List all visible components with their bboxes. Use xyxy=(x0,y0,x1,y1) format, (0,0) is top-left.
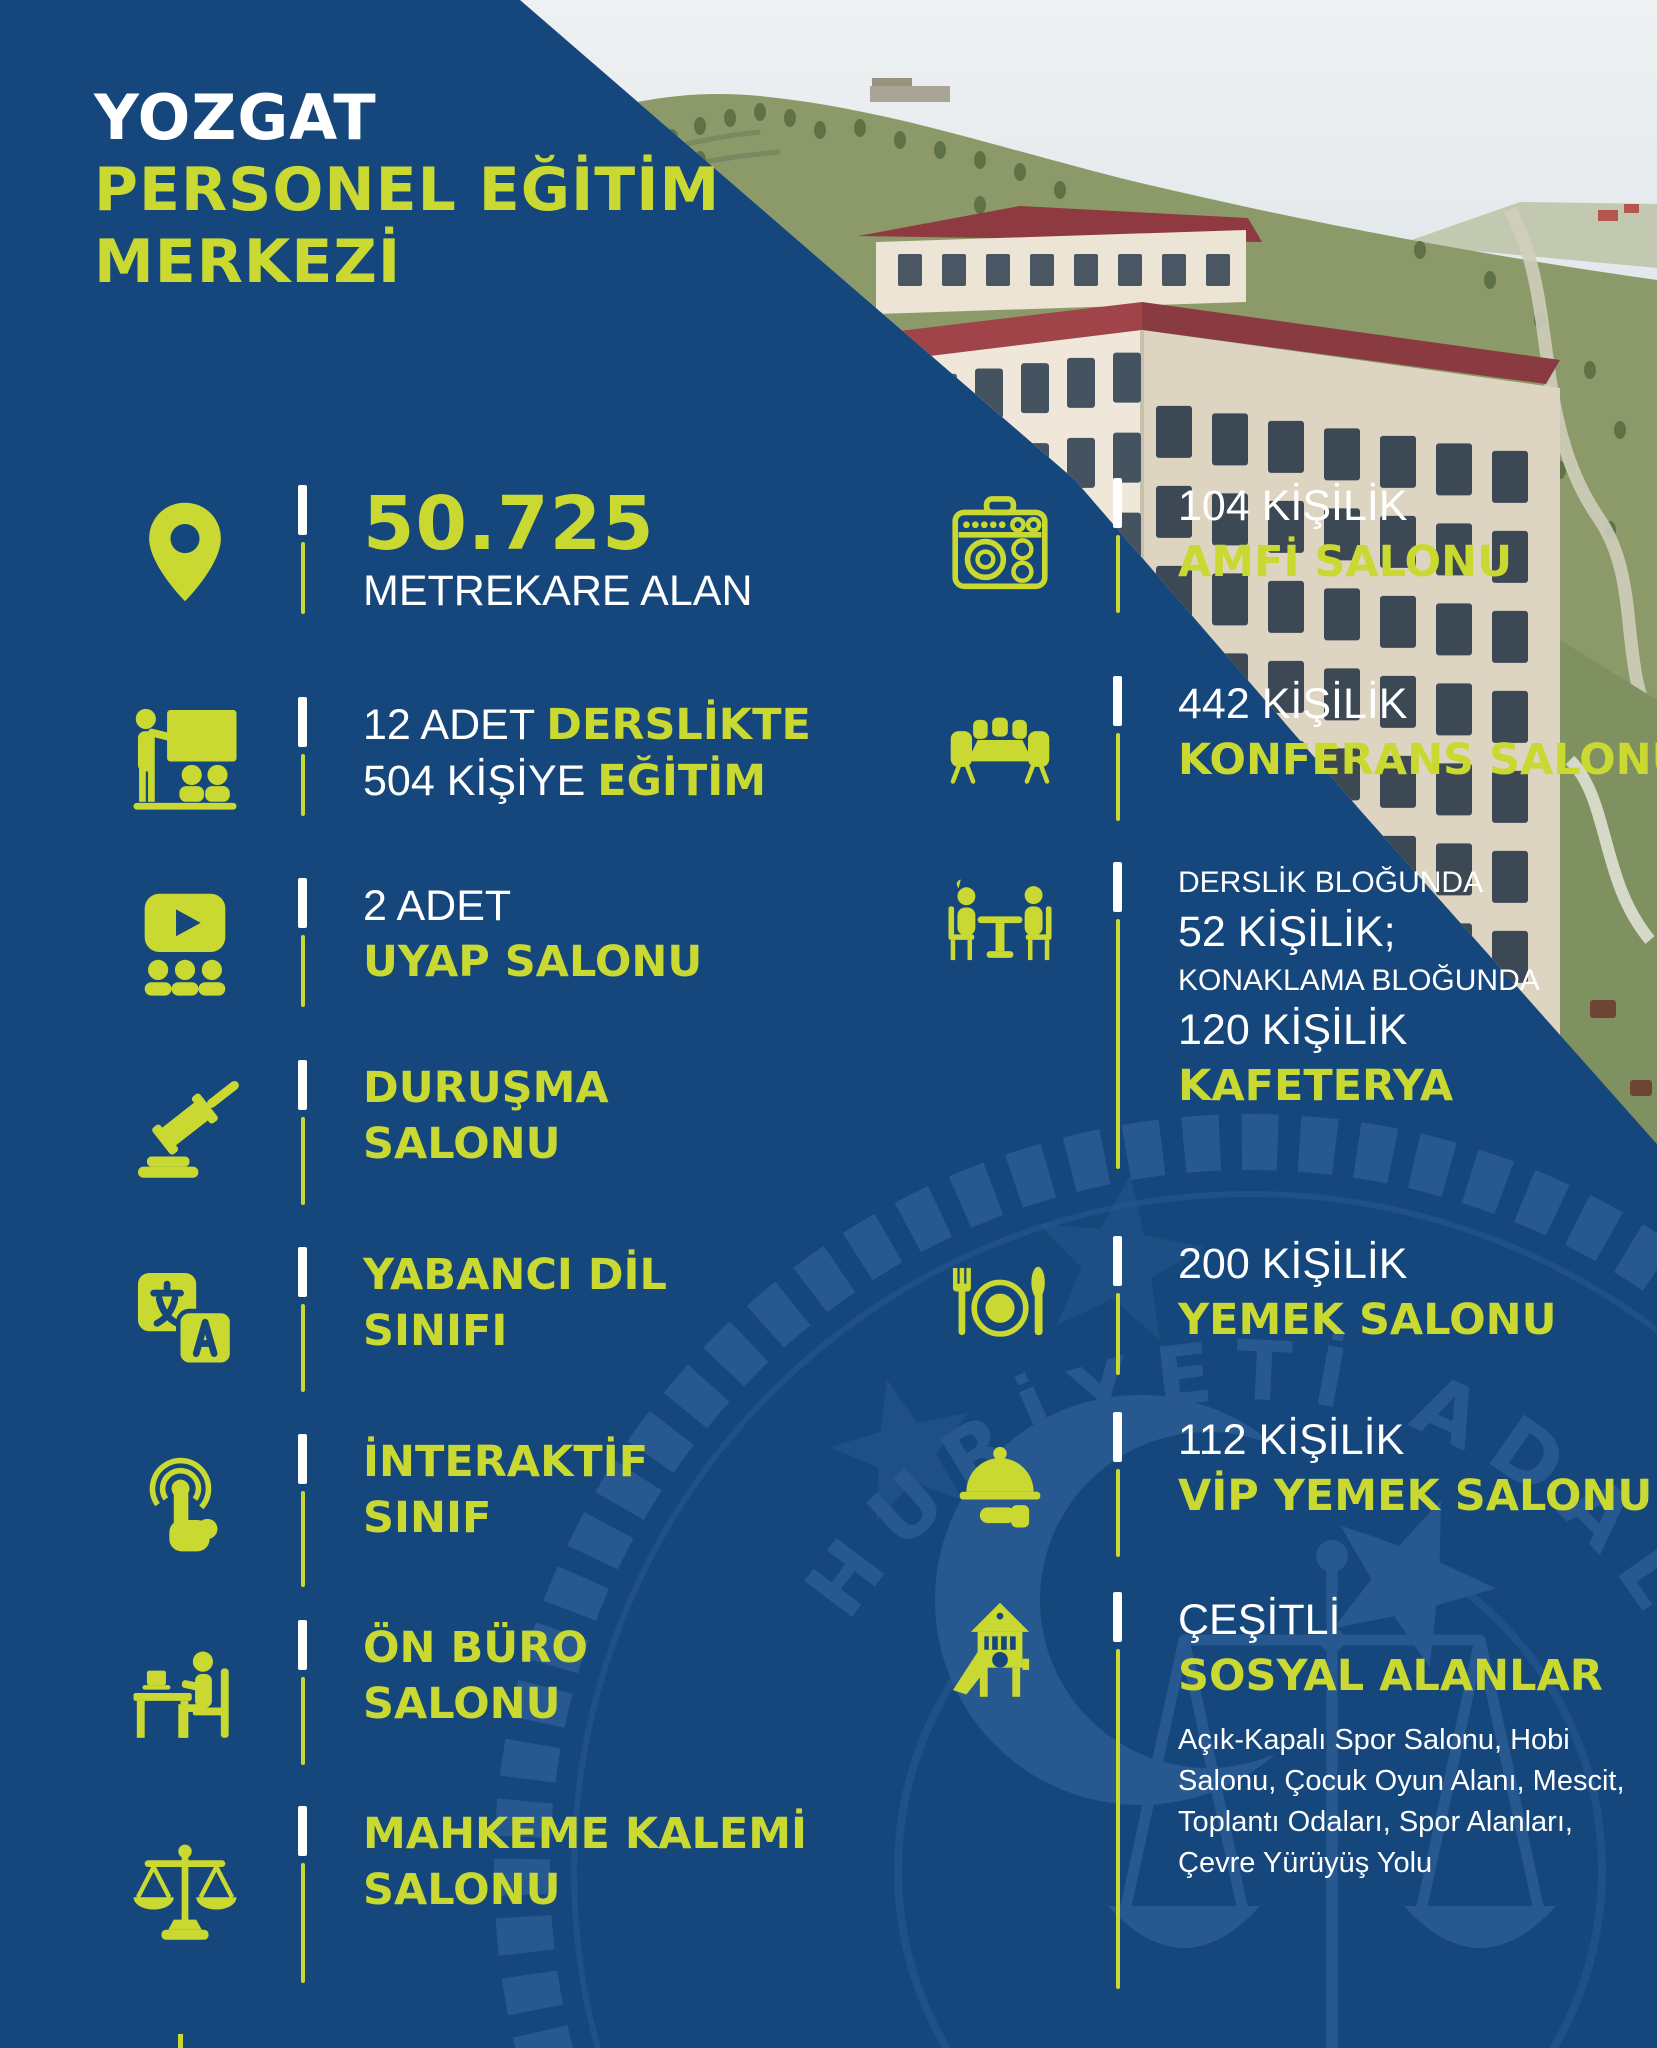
item-divider xyxy=(1113,478,1122,613)
title-line-2: PERSONEL EĞİTİM xyxy=(94,154,720,226)
title-line-3: MERKEZİ xyxy=(94,226,720,298)
uyap-video-icon xyxy=(100,887,270,999)
cafeteria-icon xyxy=(915,866,1085,978)
gavel-icon xyxy=(100,1077,270,1189)
item-vip-yemek-salonu: 112 KİŞİLİKVİP YEMEK SALONU xyxy=(915,1412,1652,1557)
dining-icon xyxy=(915,1250,1085,1362)
item-text: 12 ADET DERSLİKTE504 KİŞİYE EĞİTİM xyxy=(363,697,811,816)
item-on-buro-salonu: ÖN BÜROSALONU xyxy=(100,1620,588,1765)
item-text: ÇEŞİTLİSOSYAL ALANLARAçık-Kapalı Spor Sa… xyxy=(1178,1592,1625,1989)
location-pin-icon xyxy=(100,496,270,608)
infographic-canvas: HURİYETİ ADAL xyxy=(0,0,1657,2048)
item-derslik-egitim: 12 ADET DERSLİKTE504 KİŞİYE EĞİTİM xyxy=(100,697,811,816)
vip-dining-icon xyxy=(915,1429,1085,1541)
item-text: ÖN BÜROSALONU xyxy=(363,1620,588,1765)
item-divider xyxy=(298,697,307,816)
item-text: İNTERAKTİFSINIF xyxy=(363,1434,648,1587)
item-text: 50.725METREKARE ALAN xyxy=(363,485,753,619)
item-text: 104 KİŞİLİKAMFİ SALONU xyxy=(1178,478,1512,613)
item-divider xyxy=(298,485,307,619)
item-text: 200 KİŞİLİKYEMEK SALONU xyxy=(1178,1236,1557,1375)
item-divider xyxy=(1113,862,1122,1169)
item-uyap-salonu: 2 ADETUYAP SALONU xyxy=(100,878,702,1007)
item-text: DERSLİK BLOĞUNDA52 KİŞİLİK;KONAKLAMA BLO… xyxy=(1178,862,1540,1169)
item-divider xyxy=(298,1806,307,1983)
item-durusma-salonu: DURUŞMASALONU xyxy=(100,1060,609,1205)
item-text: 112 KİŞİLİKVİP YEMEK SALONU xyxy=(1178,1412,1652,1557)
item-divider xyxy=(1113,676,1122,821)
amplifier-icon xyxy=(915,490,1085,602)
item-text: 442 KİŞİLİKKONFERANS SALONU xyxy=(1178,676,1657,821)
translate-icon xyxy=(100,1264,270,1376)
item-text: MAHKEME KALEMİSALONU xyxy=(363,1806,807,1983)
item-divider xyxy=(298,1247,307,1392)
item-text: 2 ADETUYAP SALONU xyxy=(363,878,702,1007)
item-divider xyxy=(298,1434,307,1587)
item-metrekare-alan: 50.725METREKARE ALAN xyxy=(100,485,753,619)
item-divider xyxy=(298,1060,307,1205)
item-details: Açık-Kapalı Spor Salonu, HobiSalonu, Çoc… xyxy=(1178,1720,1625,1884)
playground-icon xyxy=(915,1596,1085,1708)
page-title: YOZGAT PERSONEL EĞİTİM MERKEZİ xyxy=(94,82,720,298)
classroom-icon xyxy=(100,701,270,813)
conference-icon xyxy=(915,693,1085,805)
item-kafeterya: DERSLİK BLOĞUNDA52 KİŞİLİK;KONAKLAMA BLO… xyxy=(915,862,1540,1169)
item-text: YABANCI DİLSINIFI xyxy=(363,1247,667,1392)
item-sosyal-alanlar: ÇEŞİTLİSOSYAL ALANLARAçık-Kapalı Spor Sa… xyxy=(915,1592,1625,1989)
item-interaktif-sinif: İNTERAKTİFSINIF xyxy=(100,1434,648,1587)
item-konferans-salonu: 442 KİŞİLİKKONFERANS SALONU xyxy=(915,676,1657,821)
item-divider xyxy=(1113,1412,1122,1557)
title-line-city: YOZGAT xyxy=(94,82,720,154)
item-divider xyxy=(298,1620,307,1765)
cutoff-divider-tick xyxy=(178,2034,183,2048)
item-divider xyxy=(1113,1592,1122,1989)
scales-icon xyxy=(100,1839,270,1951)
item-divider xyxy=(1113,1236,1122,1375)
front-desk-icon xyxy=(100,1637,270,1749)
touch-icon xyxy=(100,1455,270,1567)
item-amfi-salonu: 104 KİŞİLİKAMFİ SALONU xyxy=(915,478,1512,613)
item-mahkeme-kalemi-salonu: MAHKEME KALEMİSALONU xyxy=(100,1806,807,1983)
item-divider xyxy=(298,878,307,1007)
item-text: DURUŞMASALONU xyxy=(363,1060,609,1205)
item-yabanci-dil-sinifi: YABANCI DİLSINIFI xyxy=(100,1247,667,1392)
item-yemek-salonu: 200 KİŞİLİKYEMEK SALONU xyxy=(915,1236,1557,1375)
